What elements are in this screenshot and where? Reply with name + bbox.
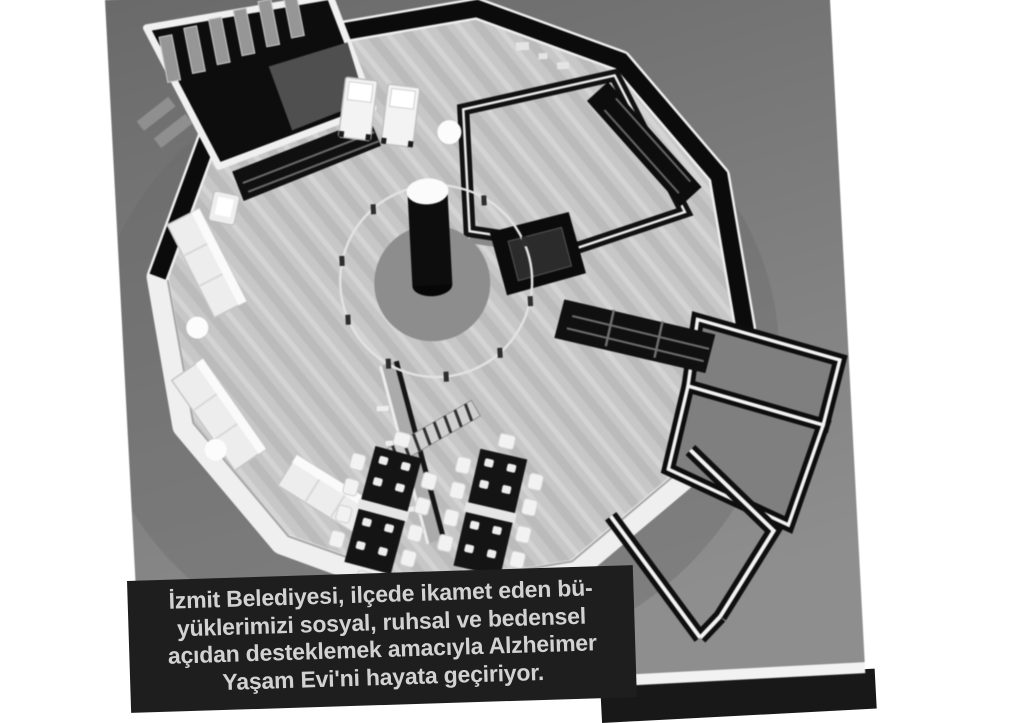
central-column [407,190,452,286]
armchair [208,191,240,226]
caption-box: İzmit Belediyesi, ilçede ikamet eden bü-… [127,565,637,713]
bed-2 [381,84,420,147]
bed-1 [339,77,378,140]
